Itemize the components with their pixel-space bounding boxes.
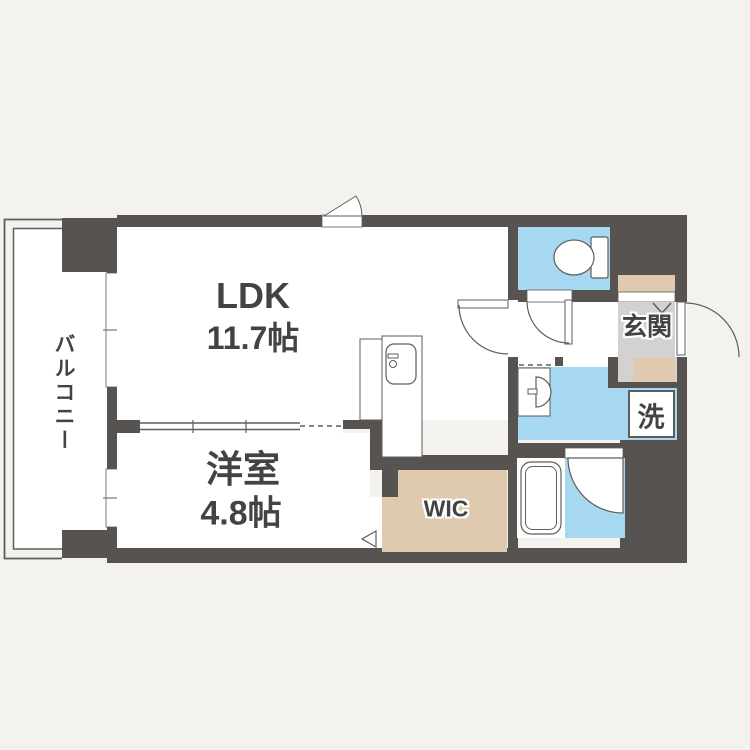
toilet-door-leaf: [565, 300, 572, 344]
laundry-label: 洗: [638, 396, 665, 435]
entrance-step-top: [618, 275, 675, 292]
ldk: [117, 196, 508, 457]
sliding-door-track: [140, 420, 300, 433]
kitchen-drain-icon: [390, 361, 397, 368]
top-door-swing-icon: [324, 196, 362, 216]
bathroom-door-threshold: [565, 448, 623, 458]
washbasin-faucet-icon: [528, 389, 537, 394]
bathroom: [517, 448, 625, 538]
wall-divider-left: [117, 420, 140, 433]
hallway-floor: [518, 302, 608, 357]
balcony-label: バルコニー: [48, 333, 78, 453]
wall-nub-washroom: [555, 357, 563, 366]
entrance-threshold: [618, 292, 675, 302]
ldk-size-label: 11.7帖: [207, 313, 300, 359]
hallway-passage: [608, 302, 618, 357]
ldk-door-leaf: [458, 300, 508, 308]
wall-ldk-right-upper: [508, 227, 518, 302]
entrance-door-leaf: [677, 302, 685, 355]
wall-wic-left: [382, 470, 398, 497]
wall-bottom-right-mass: [620, 438, 687, 563]
kitchen-faucet-icon: [388, 354, 398, 358]
bedroom-size-label: 4.8帖: [200, 486, 281, 535]
ldk-floor: [117, 227, 508, 420]
wall-balcony-top-block: [62, 218, 117, 272]
entrance-door-arc: [685, 303, 739, 357]
wic-label: WIC: [424, 496, 469, 523]
bathtub-inner-icon: [526, 467, 557, 530]
entrance-step-bottom: [633, 358, 675, 382]
ldk-doorway: [508, 300, 518, 357]
wall-divider-right: [343, 420, 370, 429]
wall-top: [117, 215, 683, 227]
washroom-open-threshold: [563, 357, 608, 367]
top-door-threshold: [322, 215, 362, 227]
toilet-bowl-icon: [554, 240, 594, 275]
ldk-label: LDK: [216, 275, 290, 317]
entrance-label: 玄関: [622, 307, 672, 343]
floor-plan-drawing: [0, 0, 750, 750]
floor-plan: バルコニー LDK 11.7帖 洋室 4.8帖 WIC 玄関 洗: [0, 0, 750, 750]
kitchen-partition: [360, 339, 382, 420]
